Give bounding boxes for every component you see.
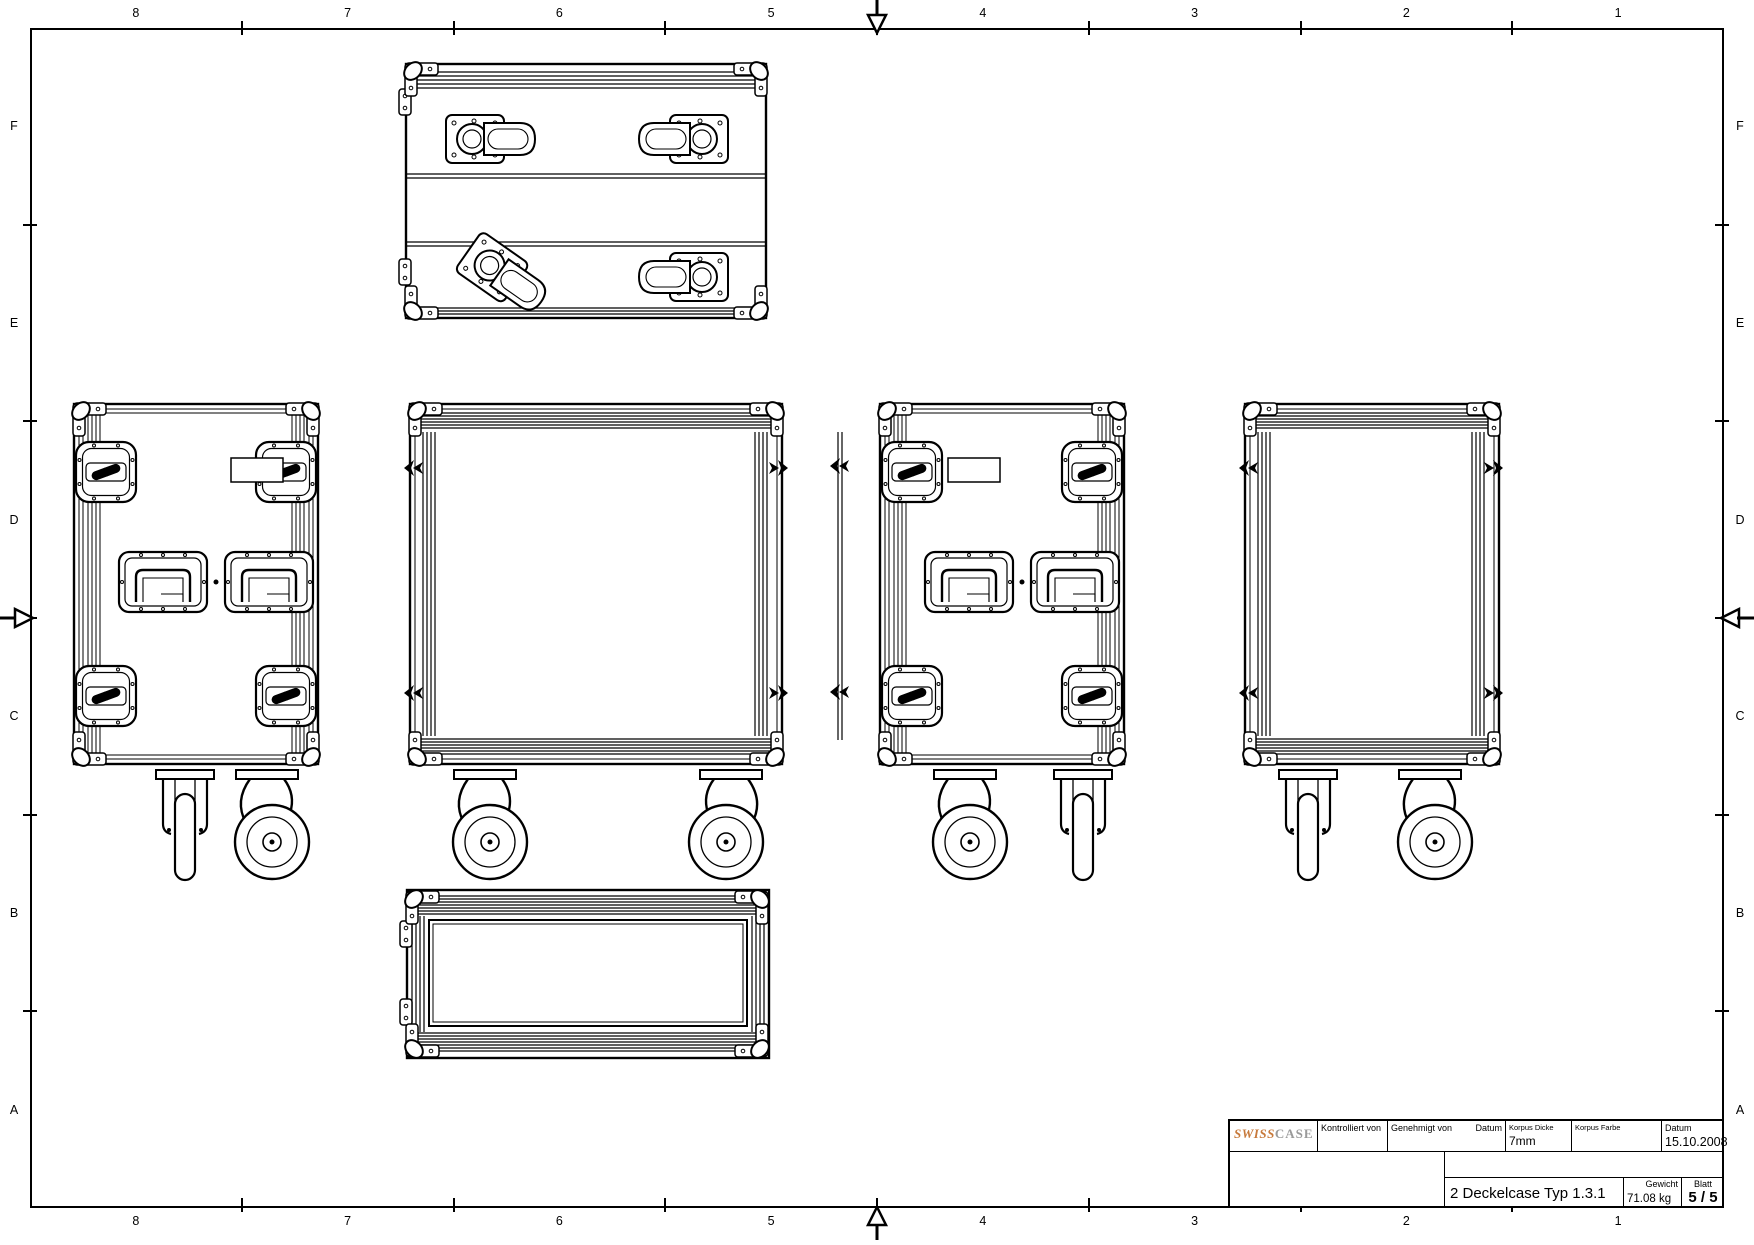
grid-tick	[23, 814, 37, 816]
case-front-view	[72, 402, 324, 882]
drawing-sheet: { "frame": { "columns": ["8", "7", "6", …	[0, 0, 1754, 1240]
grid-label: 1	[1512, 3, 1724, 23]
logo-swiss: SWISS	[1234, 1126, 1275, 1141]
grid-tick	[664, 21, 666, 35]
title-block-empty-strip	[1445, 1152, 1724, 1178]
field-kontrolliert-von: Kontrolliert von	[1318, 1121, 1388, 1152]
gewicht-label: Gewicht	[1627, 1179, 1678, 1189]
drawing-title-cell: 2 Deckelcase Typ 1.3.1	[1445, 1178, 1624, 1208]
case-body	[875, 399, 1130, 770]
datum2-value: 15.10.2008	[1665, 1135, 1728, 1149]
grid-tick	[1511, 21, 1513, 35]
grid-label: C	[1731, 618, 1749, 815]
grid-tick	[1715, 814, 1729, 816]
grid-label: 8	[30, 3, 242, 23]
caster-top-view	[446, 115, 535, 163]
grid-label: 2	[1301, 1211, 1513, 1231]
drawing-title: 2 Deckelcase Typ 1.3.1	[1445, 1178, 1623, 1208]
grid-tick	[1715, 1010, 1729, 1012]
caster-front-view	[1279, 770, 1337, 880]
center-mark-right-icon	[1718, 605, 1754, 636]
grid-tick	[1300, 21, 1302, 35]
grid-label: B	[1731, 815, 1749, 1012]
caster-top-view	[639, 115, 728, 163]
datum-label: Datum	[1475, 1123, 1502, 1133]
grid-tick	[1088, 21, 1090, 35]
kontrolliert-label: Kontrolliert von	[1321, 1123, 1384, 1133]
label-plate	[231, 458, 283, 482]
grid-label: 4	[877, 3, 1089, 23]
center-mark-top-icon	[864, 0, 890, 41]
grid-label: 8	[30, 1211, 242, 1231]
case-top-view	[400, 62, 772, 324]
grid-label: C	[5, 618, 23, 815]
grid-tick	[23, 420, 37, 422]
grid-tick	[23, 1010, 37, 1012]
latch-profile-icon	[830, 684, 849, 700]
grid-label: 3	[1089, 1211, 1301, 1231]
grid-label: 6	[454, 1211, 666, 1231]
latch-profile-icon	[830, 458, 849, 474]
korpus-dicke-value: 7mm	[1509, 1134, 1536, 1148]
grid-label: D	[5, 421, 23, 618]
grid-tick	[453, 21, 455, 35]
title-block: SWISSCASE Kontrolliert von Genehmigt von…	[1228, 1119, 1722, 1206]
korpus-dicke-label: Korpus Dicke	[1509, 1123, 1568, 1132]
center-mark-bottom-icon	[864, 1204, 890, 1245]
caster-side-view	[689, 770, 763, 879]
caster-front-view	[156, 770, 214, 880]
genehmigt-label: Genehmigt von	[1391, 1123, 1452, 1133]
grid-label: A	[5, 1011, 23, 1208]
grid-label: B	[5, 815, 23, 1012]
grid-tick	[664, 1198, 666, 1212]
logo-case: CASE	[1275, 1126, 1314, 1141]
center-mark-left-icon	[0, 605, 36, 636]
case-body	[69, 399, 324, 770]
hinge-tab	[400, 999, 412, 1025]
case-bottom-view	[403, 886, 773, 1064]
grid-label: D	[1731, 421, 1749, 618]
grid-label: F	[1731, 28, 1749, 225]
grid-label: 2	[1301, 3, 1513, 23]
caster-side-view	[235, 770, 309, 879]
grid-label: 6	[454, 3, 666, 23]
field-datum: Datum 15.10.2008	[1662, 1121, 1724, 1152]
field-korpus-dicke: Korpus Dicke 7mm	[1506, 1121, 1572, 1152]
grid-tick	[23, 224, 37, 226]
hinge-tab	[400, 921, 412, 947]
blatt-value: 5 / 5	[1685, 1189, 1721, 1206]
grid-label: 7	[242, 3, 454, 23]
field-genehmigt-von: Genehmigt von Datum	[1388, 1121, 1506, 1152]
grid-label: E	[1731, 225, 1749, 422]
field-korpus-farbe: Korpus Farbe	[1572, 1121, 1662, 1152]
grid-label: 5	[665, 1211, 877, 1231]
grid-tick	[1715, 224, 1729, 226]
grid-tick	[241, 21, 243, 35]
gewicht-value: 71.08 kg	[1627, 1193, 1671, 1205]
case-side-view-large	[408, 402, 788, 882]
caster-front-view	[1054, 770, 1112, 880]
korpus-farbe-label: Korpus Farbe	[1575, 1123, 1658, 1132]
caster-top-view	[639, 253, 728, 301]
grid-label: E	[5, 225, 23, 422]
grid-label: 4	[877, 1211, 1089, 1231]
grid-label: 1	[1512, 1211, 1724, 1231]
grid-tick	[453, 1198, 455, 1212]
case-back-view	[830, 402, 1164, 882]
title-block-empty-cell	[1230, 1152, 1445, 1208]
grid-label: 3	[1089, 3, 1301, 23]
blatt-label: Blatt	[1685, 1179, 1721, 1189]
caster-side-view	[1398, 770, 1472, 879]
grid-tick	[241, 1198, 243, 1212]
caster-side-view	[933, 770, 1007, 879]
grid-label: A	[1731, 1011, 1749, 1208]
company-logo: SWISSCASE	[1230, 1121, 1318, 1152]
case-side-view-right	[1243, 402, 1505, 882]
label-plate	[948, 458, 1000, 482]
grid-tick	[1088, 1198, 1090, 1212]
field-blatt: Blatt 5 / 5	[1682, 1178, 1724, 1208]
datum2-label: Datum	[1665, 1123, 1721, 1133]
grid-label: 7	[242, 1211, 454, 1231]
hinge-tab	[399, 259, 411, 285]
caster-side-view	[453, 770, 527, 879]
grid-label: 5	[665, 3, 877, 23]
field-gewicht: Gewicht 71.08 kg	[1624, 1178, 1682, 1208]
grid-tick	[1715, 420, 1729, 422]
grid-label: F	[5, 28, 23, 225]
